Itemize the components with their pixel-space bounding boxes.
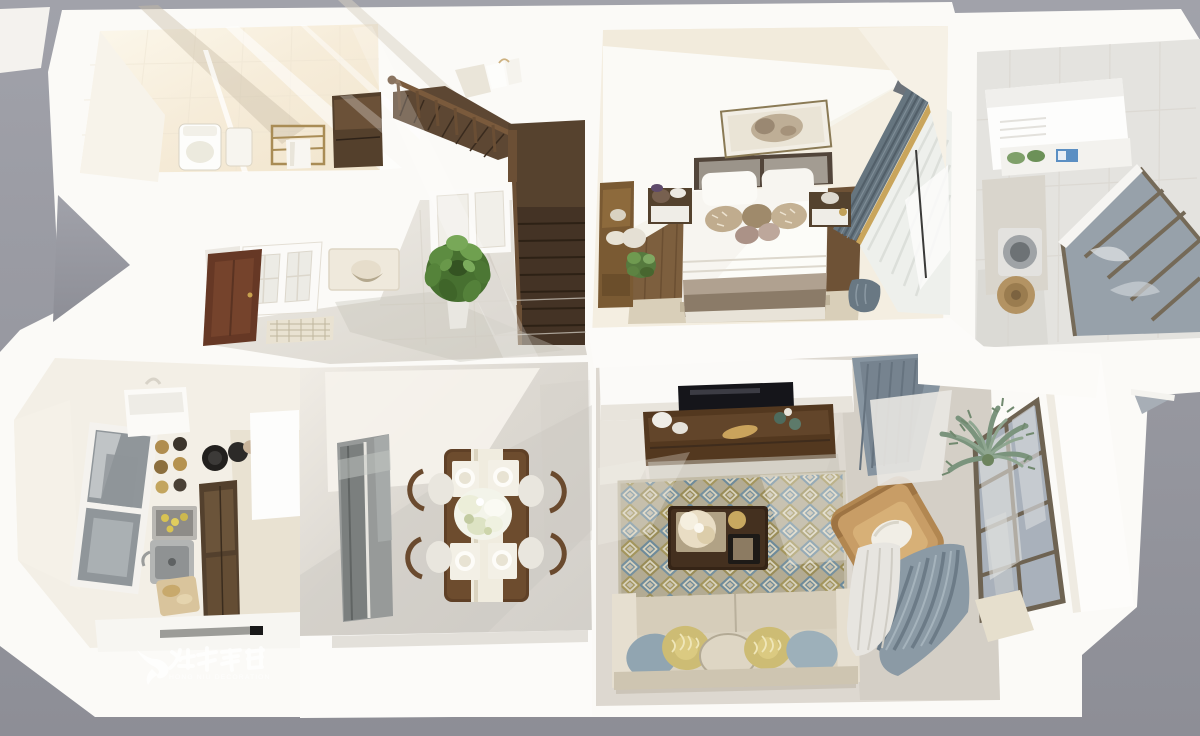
svg-text:HONG NIU DECORATION: HONG NIU DECORATION: [169, 674, 271, 681]
